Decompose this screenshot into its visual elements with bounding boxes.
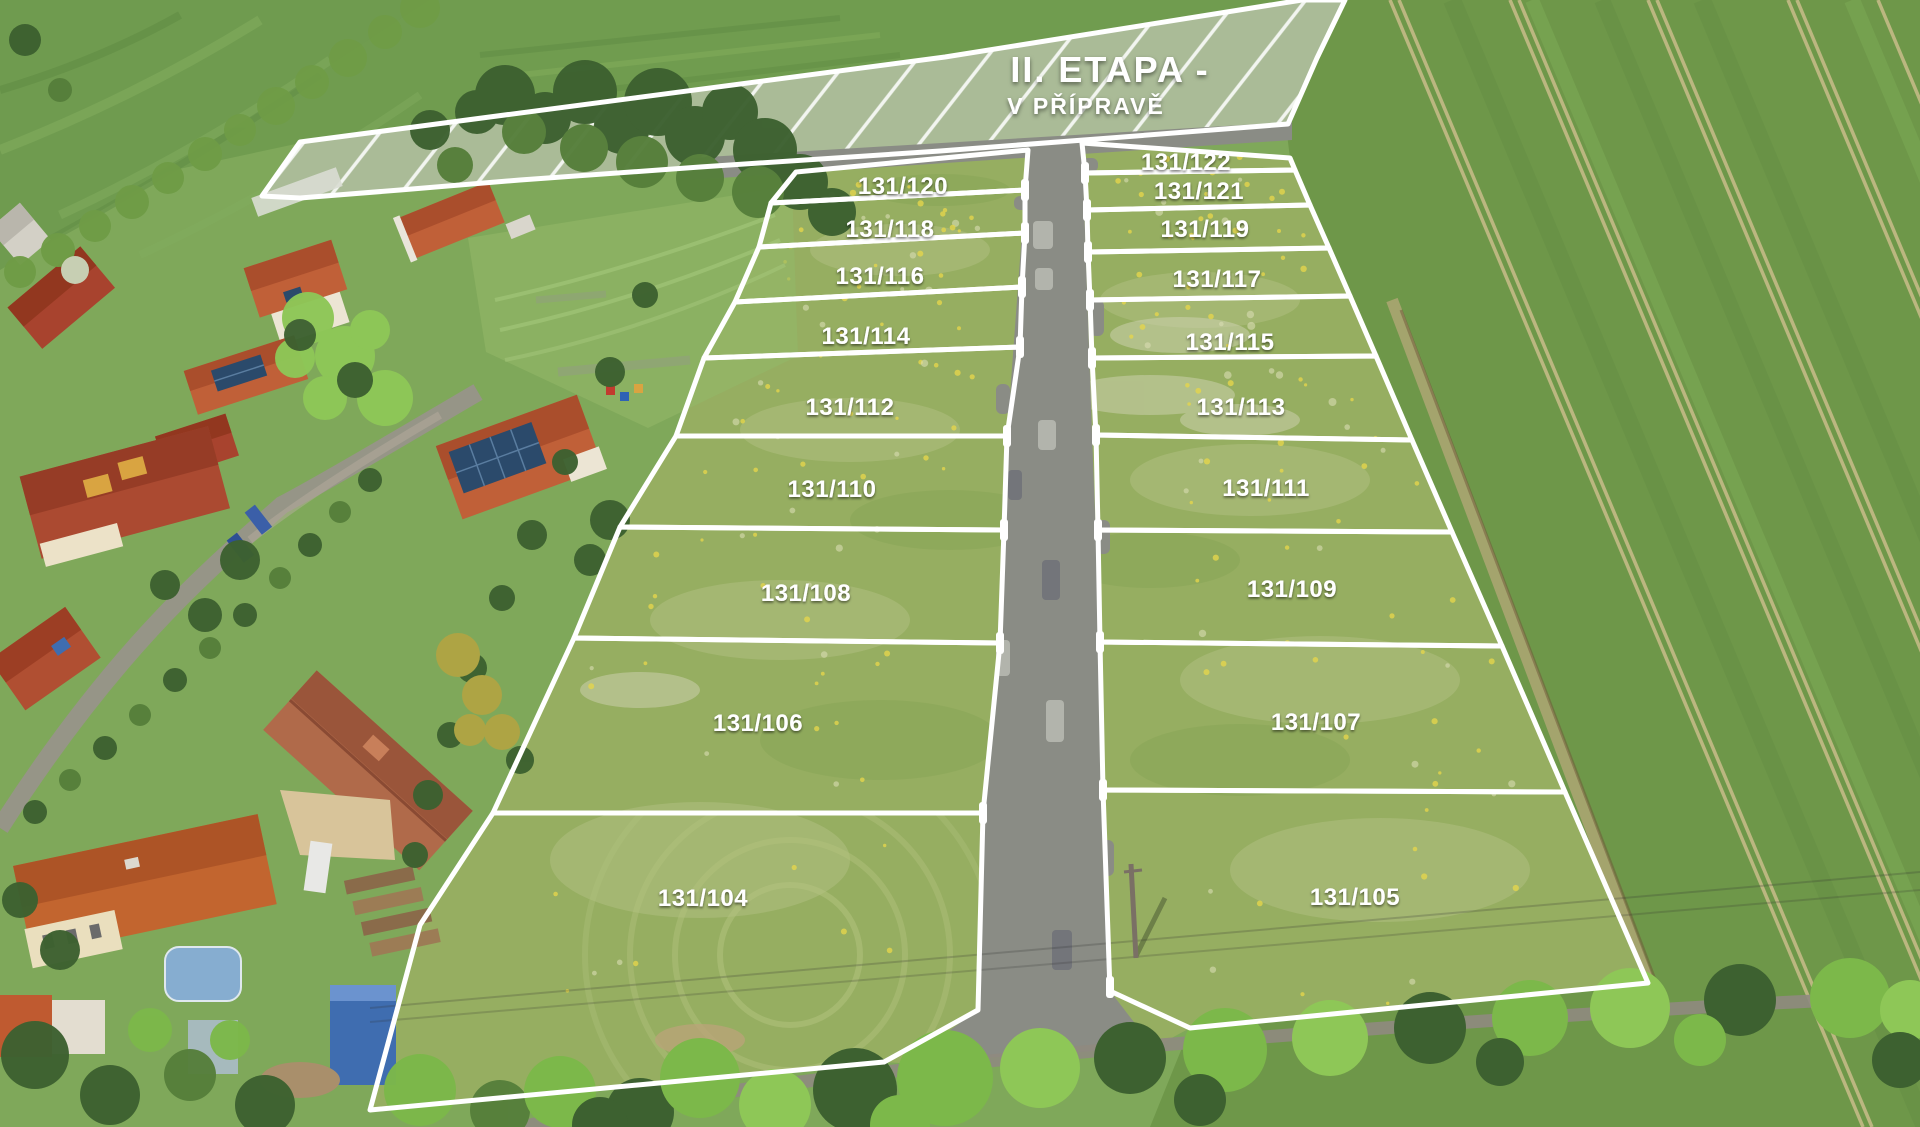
parcel-label: 131/119 <box>1161 216 1250 243</box>
parcel-label: 131/113 <box>1197 394 1286 421</box>
parcel-label: 131/105 <box>1310 884 1400 911</box>
parcel-label: 131/114 <box>822 323 911 350</box>
parcel-label: 131/118 <box>846 216 935 243</box>
phase-subtitle: V PŘÍPRAVĚ <box>1007 92 1165 119</box>
parcel-label: 131/116 <box>836 263 925 290</box>
parcel-label: 131/111 <box>1222 475 1310 502</box>
phase-title: II. ETAPA - <box>1010 49 1209 90</box>
parcel-label: 131/107 <box>1271 709 1361 736</box>
parcel-label: 131/121 <box>1154 178 1244 205</box>
aerial-parcel-map: 131/120 131/118 131/116 131/114 131/112 … <box>0 0 1920 1127</box>
container-top <box>330 985 396 1001</box>
parcel-label: 131/108 <box>761 580 851 607</box>
parcel-label: 131/106 <box>713 710 803 737</box>
aerial-photo-canvas: 131/120 131/118 131/116 131/114 131/112 … <box>0 0 1920 1127</box>
parcel-label: 131/117 <box>1173 266 1262 293</box>
parcel-label: 131/109 <box>1247 576 1337 603</box>
playground <box>606 386 615 395</box>
parcel-label: 131/104 <box>658 885 748 912</box>
parcel-label: 131/110 <box>788 476 877 503</box>
parcel-label: 131/120 <box>858 173 948 200</box>
parcel-label: 131/115 <box>1186 329 1275 356</box>
parcel-label: 131/112 <box>806 394 895 421</box>
parcel-label: 131/122 <box>1141 149 1231 176</box>
pool-enclosure <box>165 947 241 1001</box>
playground <box>634 384 643 393</box>
playground <box>620 392 629 401</box>
